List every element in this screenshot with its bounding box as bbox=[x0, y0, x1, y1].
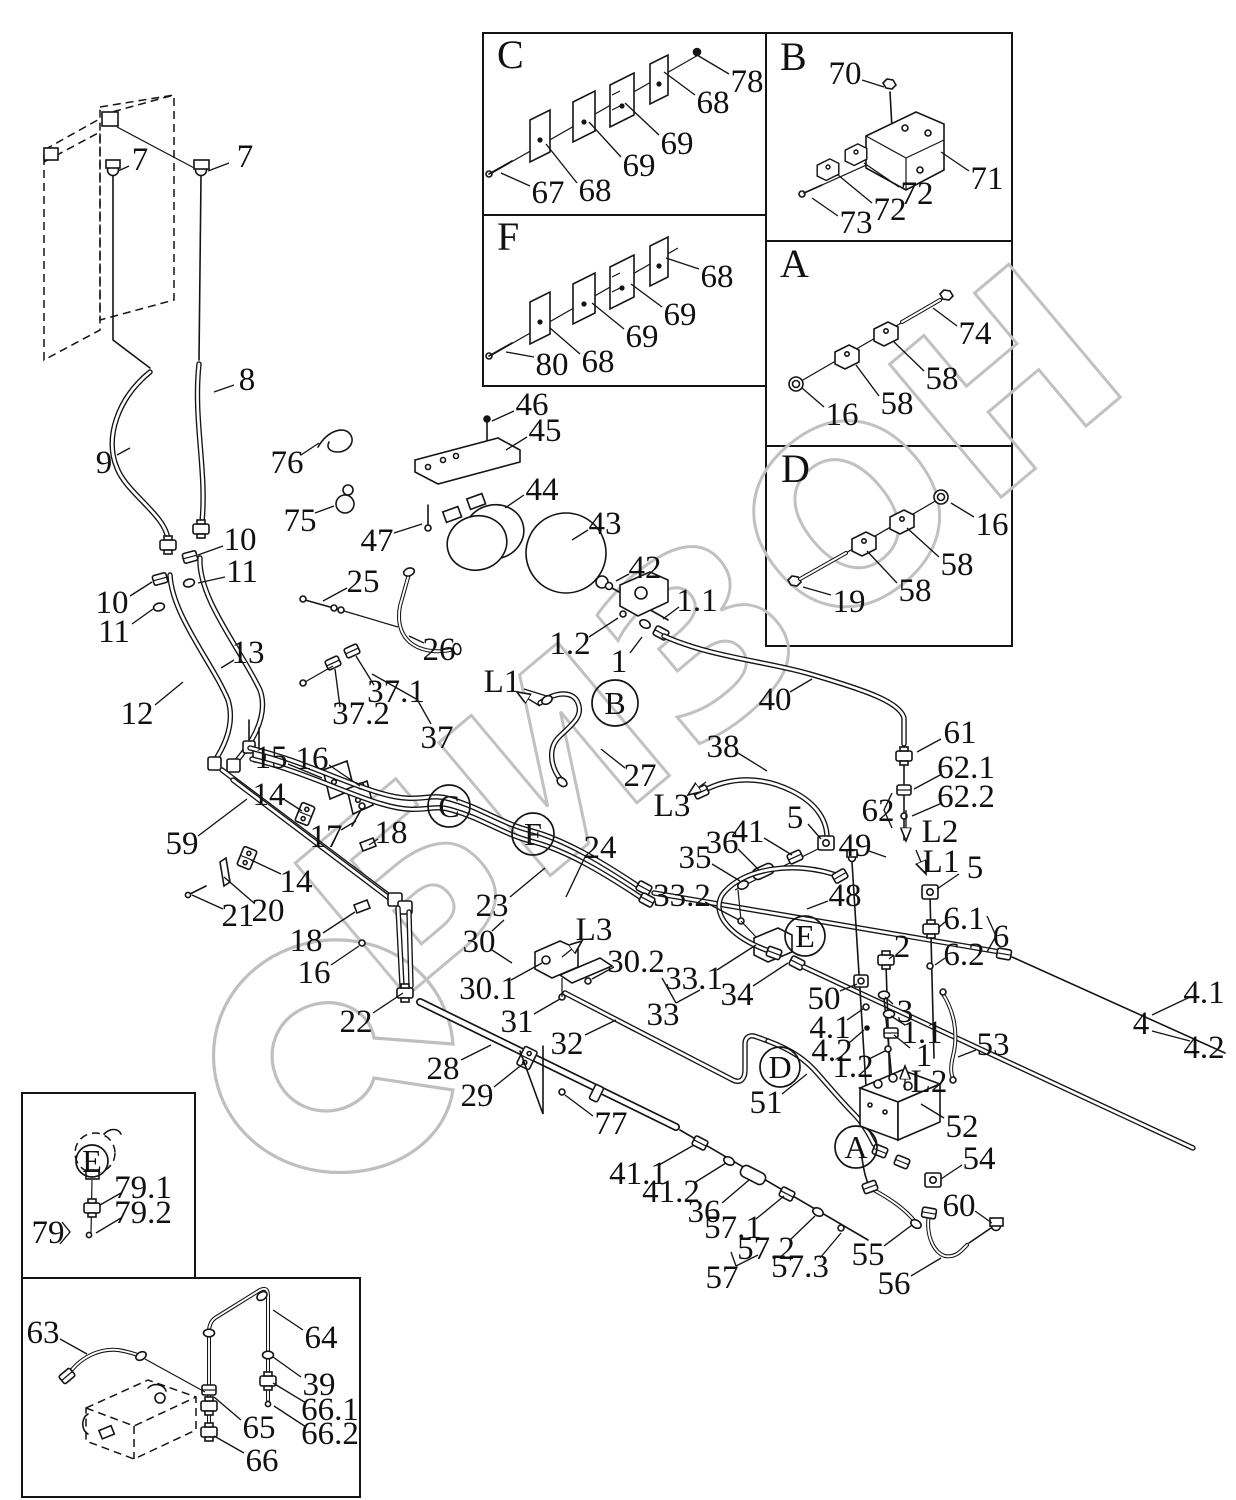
elbow-54 bbox=[925, 1173, 941, 1187]
ref-circle-letter-A: A bbox=[844, 1129, 867, 1165]
part-label-59: 59 bbox=[166, 826, 199, 862]
inset-letter-A: A bbox=[780, 241, 809, 286]
part-label-36: 36 bbox=[688, 1194, 721, 1230]
part-label-11: 11 bbox=[98, 614, 130, 650]
elbow-50 bbox=[854, 975, 868, 987]
dot-30-2 bbox=[585, 978, 591, 984]
part-label-66.2: 66.2 bbox=[301, 1416, 359, 1452]
nut-16 bbox=[789, 377, 803, 391]
part-label-68: 68 bbox=[697, 85, 730, 121]
ref-circle-letter-C: C bbox=[438, 788, 459, 824]
cooler-tab bbox=[102, 112, 118, 126]
washer-39 bbox=[263, 1351, 274, 1359]
part-label-68: 68 bbox=[579, 173, 612, 209]
part-label-7: 7 bbox=[132, 142, 149, 178]
part-label-15: 15 bbox=[255, 740, 288, 776]
bolt-16 bbox=[359, 940, 365, 946]
inset-letter-F: F bbox=[497, 214, 519, 259]
part-label-78: 78 bbox=[731, 64, 764, 100]
part-label-71: 71 bbox=[971, 161, 1004, 197]
part-label-1.2: 1.2 bbox=[832, 1049, 873, 1085]
inset-letter-B: B bbox=[780, 34, 807, 79]
part-label-40: 40 bbox=[759, 682, 792, 718]
part-label-57: 57 bbox=[706, 1260, 739, 1296]
fitting-62-1 bbox=[897, 785, 911, 795]
part-label-72: 72 bbox=[874, 192, 907, 228]
part-label-68: 68 bbox=[701, 259, 734, 295]
part-label-80: 80 bbox=[536, 347, 569, 383]
part-label-1.1: 1.1 bbox=[676, 583, 717, 619]
part-label-58: 58 bbox=[926, 361, 959, 397]
part-label-12: 12 bbox=[121, 696, 154, 732]
nut-16 bbox=[934, 490, 948, 504]
elbow bbox=[227, 759, 240, 772]
washer-79-2 bbox=[86, 1232, 91, 1237]
part-label-33: 33 bbox=[647, 997, 680, 1033]
part-label-60: 60 bbox=[943, 1188, 976, 1224]
part-label-14: 14 bbox=[253, 777, 286, 813]
flow-label-L3: L3 bbox=[576, 912, 613, 948]
bolt-78 bbox=[694, 49, 701, 56]
parts-diagram-page: БИЗОН bbox=[0, 0, 1236, 1500]
part-label-34: 34 bbox=[721, 977, 754, 1013]
part-label-69: 69 bbox=[626, 319, 659, 355]
part-label-30.1: 30.1 bbox=[459, 971, 517, 1007]
part-label-42: 42 bbox=[629, 550, 662, 586]
part-label-54: 54 bbox=[963, 1141, 996, 1177]
parts-diagram: БИЗОН bbox=[0, 0, 1236, 1500]
part-label-9: 9 bbox=[96, 445, 113, 481]
inset-letter-D: D bbox=[781, 446, 810, 491]
part-label-18: 18 bbox=[375, 815, 408, 851]
part-label-66: 66 bbox=[246, 1443, 279, 1479]
part-label-76: 76 bbox=[271, 445, 304, 481]
part-label-58: 58 bbox=[881, 386, 914, 422]
part-label-11: 11 bbox=[226, 554, 258, 590]
part-label-38: 38 bbox=[707, 729, 740, 765]
part-label-79: 79 bbox=[32, 1215, 65, 1251]
part-label-41: 41 bbox=[732, 814, 765, 850]
part-label-2: 2 bbox=[894, 929, 911, 965]
part-label-23: 23 bbox=[476, 888, 509, 924]
part-label-10: 10 bbox=[224, 522, 257, 558]
part-label-73: 73 bbox=[840, 205, 873, 241]
part-label-75: 75 bbox=[284, 503, 317, 539]
part-label-77: 77 bbox=[595, 1106, 628, 1142]
part-label-25: 25 bbox=[347, 564, 380, 600]
part-label-61: 61 bbox=[944, 715, 977, 751]
pin-77 bbox=[559, 1089, 565, 1095]
plate-68 bbox=[650, 55, 668, 104]
flow-label-L3: L3 bbox=[654, 788, 691, 824]
part-label-5: 5 bbox=[967, 850, 984, 886]
part-label-6.1: 6.1 bbox=[943, 901, 984, 937]
ref-circle-letter-E: E bbox=[795, 918, 815, 954]
ref-circle-letter-E: E bbox=[82, 1143, 102, 1179]
cooler-tab bbox=[44, 148, 58, 160]
part-label-6: 6 bbox=[993, 919, 1010, 955]
part-label-56: 56 bbox=[878, 1266, 911, 1302]
part-label-58: 58 bbox=[941, 547, 974, 583]
part-label-33.1: 33.1 bbox=[665, 961, 723, 997]
part-label-44: 44 bbox=[526, 472, 559, 508]
plate-68 bbox=[530, 292, 550, 344]
part-label-79.2: 79.2 bbox=[114, 1195, 172, 1231]
dot-4-2 bbox=[865, 1026, 869, 1030]
part-label-1.2: 1.2 bbox=[549, 626, 590, 662]
part-label-20: 20 bbox=[252, 893, 285, 929]
washer-66-2 bbox=[265, 1401, 270, 1406]
part-label-31: 31 bbox=[501, 1004, 534, 1040]
part-label-6.2: 6.2 bbox=[943, 937, 984, 973]
part-label-28: 28 bbox=[427, 1051, 460, 1087]
fitting-7-left bbox=[106, 160, 120, 176]
part-label-67: 67 bbox=[532, 175, 565, 211]
part-label-33.2: 33.2 bbox=[653, 878, 711, 914]
part-label-4.2: 4.2 bbox=[1183, 1030, 1224, 1066]
washer-1-2 bbox=[885, 1046, 891, 1052]
part-label-65: 65 bbox=[243, 1410, 276, 1446]
part-label-49: 49 bbox=[839, 828, 872, 864]
flow-label-L1: L1 bbox=[484, 664, 521, 700]
part-label-47: 47 bbox=[361, 523, 394, 559]
part-label-74: 74 bbox=[959, 316, 992, 352]
part-label-30: 30 bbox=[463, 924, 496, 960]
part-label-30.2: 30.2 bbox=[607, 944, 665, 980]
part-label-4.1: 4.1 bbox=[1183, 975, 1224, 1011]
washer-1-2 bbox=[620, 611, 626, 617]
inset-letter-C: C bbox=[497, 32, 524, 77]
part-label-27: 27 bbox=[624, 758, 657, 794]
part-label-69: 69 bbox=[664, 297, 697, 333]
part-label-62.2: 62.2 bbox=[937, 779, 995, 815]
part-label-32: 32 bbox=[551, 1026, 584, 1062]
part-label-16: 16 bbox=[296, 741, 329, 777]
part-label-69: 69 bbox=[623, 148, 656, 184]
part-label-53: 53 bbox=[977, 1027, 1010, 1063]
part-label-64: 64 bbox=[305, 1320, 338, 1356]
elbow-5 bbox=[922, 885, 938, 899]
plate-68 bbox=[530, 110, 550, 162]
ref-circle-letter-D: D bbox=[768, 1049, 791, 1085]
part-label-26: 26 bbox=[423, 632, 456, 668]
part-label-43: 43 bbox=[589, 506, 622, 542]
washer-6-2 bbox=[927, 963, 933, 969]
part-label-8: 8 bbox=[239, 362, 256, 398]
part-label-63: 63 bbox=[27, 1315, 60, 1351]
part-label-21: 21 bbox=[222, 898, 255, 934]
part-label-16: 16 bbox=[976, 507, 1009, 543]
part-label-5: 5 bbox=[787, 800, 804, 836]
part-label-24: 24 bbox=[584, 830, 617, 866]
part-label-52: 52 bbox=[946, 1109, 979, 1145]
part-label-17: 17 bbox=[310, 819, 343, 855]
flow-label-L2: L2 bbox=[911, 1064, 948, 1100]
part-label-16: 16 bbox=[298, 955, 331, 991]
part-label-58: 58 bbox=[899, 573, 932, 609]
flow-label-L2: L2 bbox=[922, 814, 959, 850]
part-label-57.3: 57.3 bbox=[771, 1249, 829, 1285]
part-label-37.2: 37.2 bbox=[332, 696, 390, 732]
part-label-37: 37 bbox=[421, 720, 454, 756]
part-label-70: 70 bbox=[829, 56, 862, 92]
part-label-13: 13 bbox=[232, 635, 265, 671]
elbow bbox=[208, 757, 221, 770]
part-label-7: 7 bbox=[237, 139, 254, 175]
part-label-62: 62 bbox=[862, 793, 895, 829]
fitting-3 bbox=[879, 991, 890, 999]
ref-circle-letter-F: F bbox=[524, 816, 542, 852]
part-label-45: 45 bbox=[529, 413, 562, 449]
part-label-4: 4 bbox=[1133, 1006, 1150, 1042]
part-label-29: 29 bbox=[461, 1078, 494, 1114]
fitting-57-3 bbox=[838, 1225, 844, 1231]
dot-4-1 bbox=[863, 1004, 869, 1010]
part-label-48: 48 bbox=[829, 878, 862, 914]
fitting-65 bbox=[202, 1385, 216, 1395]
plate-68 bbox=[650, 237, 668, 286]
part-label-51: 51 bbox=[750, 1085, 783, 1121]
part-label-18: 18 bbox=[290, 923, 323, 959]
part-label-19: 19 bbox=[833, 584, 866, 620]
inset-box-C bbox=[483, 33, 766, 215]
part-label-1: 1 bbox=[611, 644, 628, 680]
part-label-68: 68 bbox=[582, 344, 615, 380]
part-label-16: 16 bbox=[826, 397, 859, 433]
part-label-69: 69 bbox=[661, 126, 694, 162]
ref-circle-letter-B: B bbox=[604, 685, 625, 721]
part-label-22: 22 bbox=[340, 1004, 373, 1040]
